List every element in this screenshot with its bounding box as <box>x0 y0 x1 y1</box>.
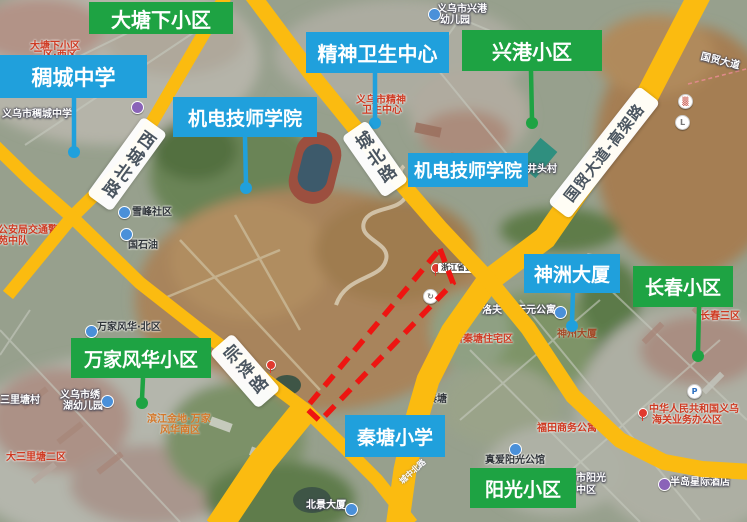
callout-changchun: 长春小区 <box>633 266 733 307</box>
road-xichengbei <box>8 0 228 295</box>
callout-xinggang: 兴港小区 <box>462 30 602 71</box>
callout-choucheng-school: 稠城中学 <box>0 55 147 98</box>
road-zongze <box>0 145 412 522</box>
callout-jidian-college-east: 机电技师学院 <box>408 153 528 187</box>
callout-datangxia: 大塘下小区 <box>89 2 233 34</box>
callout-shenzhou-tower: 神洲大厦 <box>524 254 620 293</box>
callout-mental-health-center: 精神卫生中心 <box>306 32 449 73</box>
map-stage[interactable]: 大塘下小区 二区·西区 义乌市稠城中学 雪峰社区 国石油 义乌市兴港 幼儿园 义… <box>0 0 747 522</box>
callout-yangguang: 阳光小区 <box>470 468 576 508</box>
callout-wanjia-fenghua: 万家风华小区 <box>71 338 211 378</box>
callout-qintang-school: 秦塘小学 <box>345 415 445 457</box>
callout-jidian-college-west: 机电技师学院 <box>173 97 317 137</box>
road-chengzhongbei <box>218 408 306 522</box>
